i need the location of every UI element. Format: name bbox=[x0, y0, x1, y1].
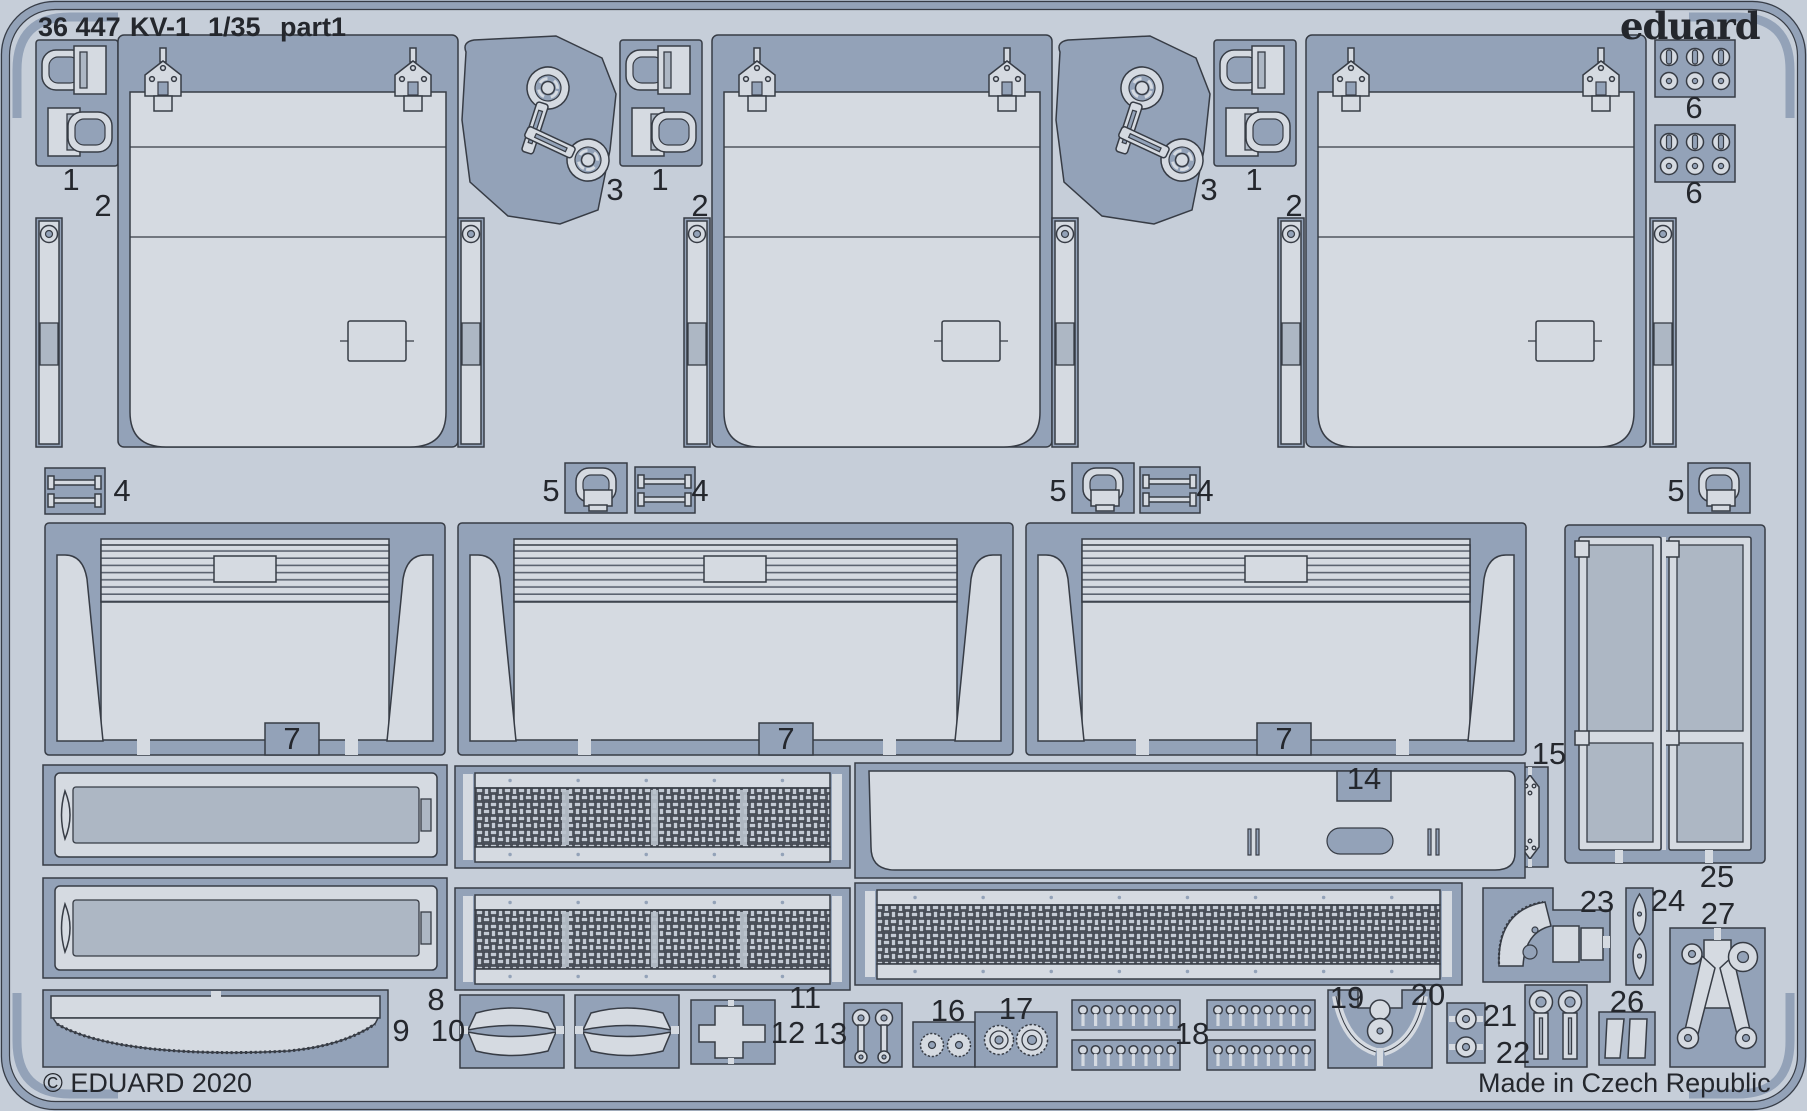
part-number-label: 22 bbox=[1496, 1035, 1530, 1071]
part-number-label: 27 bbox=[1701, 896, 1735, 932]
part-number-label: 21 bbox=[1483, 998, 1517, 1034]
part-number-label: 9 bbox=[392, 1013, 409, 1049]
part-number-label: 2 bbox=[1285, 188, 1302, 224]
part-number-label: 17 bbox=[999, 991, 1033, 1027]
part-number-label: 5 bbox=[1049, 473, 1066, 509]
part-number-label: 3 bbox=[1200, 172, 1217, 208]
part-number-label: 1 bbox=[62, 162, 79, 198]
part-number-label: 24 bbox=[1651, 883, 1685, 919]
part-number-label: 3 bbox=[606, 172, 623, 208]
part-number-label: 7 bbox=[283, 721, 300, 757]
part-number-label: 7 bbox=[777, 721, 794, 757]
part-number-label: 10 bbox=[431, 1013, 465, 1049]
part-number-label: 15 bbox=[1532, 736, 1566, 772]
part-number-label: 23 bbox=[1580, 884, 1614, 920]
part-number-label: 4 bbox=[691, 473, 708, 509]
part-number-label: 6 bbox=[1685, 175, 1702, 211]
part-number-label: 7 bbox=[1275, 721, 1292, 757]
part-number-label: 11 bbox=[789, 980, 821, 1016]
part-labels-layer: 1112223344455566777891011121314151617181… bbox=[0, 0, 1807, 1111]
part-number-label: 2 bbox=[94, 188, 111, 224]
part-number-label: 2 bbox=[691, 188, 708, 224]
part-number-label: 12 bbox=[771, 1015, 805, 1051]
part-number-label: 5 bbox=[1667, 473, 1684, 509]
part-number-label: 4 bbox=[113, 473, 130, 509]
part-number-label: 14 bbox=[1347, 761, 1381, 797]
part-number-label: 5 bbox=[542, 473, 559, 509]
part-number-label: 13 bbox=[813, 1016, 847, 1052]
part-number-label: 4 bbox=[1196, 473, 1213, 509]
part-number-label: 1 bbox=[651, 162, 668, 198]
part-number-label: 26 bbox=[1610, 984, 1644, 1020]
part-number-label: 18 bbox=[1175, 1016, 1209, 1052]
part-number-label: 16 bbox=[931, 993, 965, 1029]
part-number-label: 6 bbox=[1685, 90, 1702, 126]
pe-fret-sheet: 36 447 KV-1 1/35 part1 eduard © EDUARD 2… bbox=[0, 0, 1807, 1111]
part-number-label: 25 bbox=[1700, 859, 1734, 895]
part-number-label: 19 bbox=[1330, 980, 1364, 1016]
part-number-label: 1 bbox=[1245, 162, 1262, 198]
part-number-label: 20 bbox=[1411, 977, 1445, 1013]
